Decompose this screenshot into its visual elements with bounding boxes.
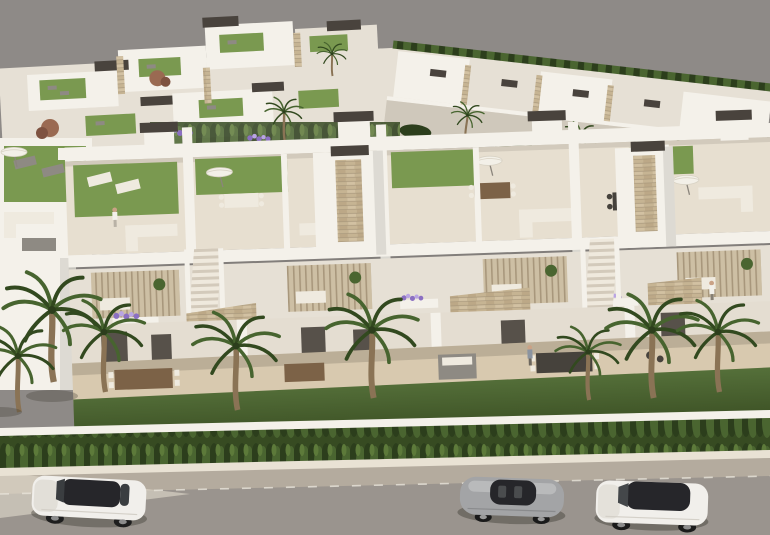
white-sedan	[594, 480, 710, 533]
architectural-render	[0, 0, 770, 535]
roof-lawn	[391, 149, 478, 188]
white-suv	[31, 475, 149, 530]
main-townhouse-row	[64, 97, 770, 456]
silver-coupe	[457, 476, 567, 526]
